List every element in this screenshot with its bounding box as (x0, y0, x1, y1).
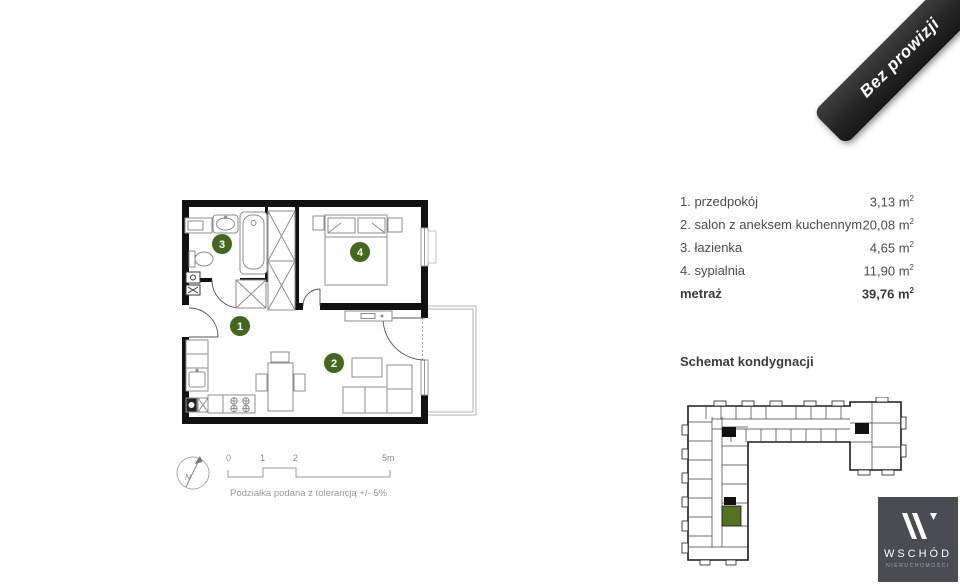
scale-tick-label: 0 (226, 453, 231, 463)
north-label: N (185, 473, 191, 482)
bedroom-window (421, 228, 436, 266)
promo-ribbon: Bez prowizji (795, 0, 960, 165)
balcony-door (383, 318, 425, 360)
brand-subtitle: NIERUCHOMOŚCI (886, 563, 950, 569)
logo-w-icon (897, 511, 939, 541)
living-room-window (421, 318, 428, 395)
room-number: 4 (357, 247, 364, 259)
room-label: 2. salon z aneksem kuchennym (680, 213, 862, 236)
legend-row: 3. łazienka 4,65 m2 (680, 233, 914, 256)
dining-table (256, 352, 305, 411)
north-arrow: N (177, 456, 209, 489)
schematic-title: Schemat kondygnacji (680, 354, 814, 369)
sink (213, 215, 238, 233)
corner-meters (186, 398, 208, 412)
highlighted-unit (722, 506, 741, 526)
floor-plan: 1 2 3 4 (175, 196, 485, 431)
scale-bar-group: N 0 1 2 5m Podziałka podana z tolerancją… (175, 445, 415, 510)
scale-tick-label: 1 (260, 453, 265, 463)
nightstand-right (388, 218, 402, 232)
promo-ribbon-band: Bez prowizji (813, 0, 960, 145)
room-label: 1. przedpokój (680, 190, 758, 213)
page: Bez prowizji 1. przedpokój 3,13 m2 2. sa… (0, 0, 960, 584)
brand-name: WSCHÓD (884, 548, 952, 560)
legend-row: 4. sypialnia 11,90 m2 (680, 256, 914, 279)
legend-total-row: metraż 39,76 m2 (680, 279, 914, 302)
room-number: 1 (237, 321, 243, 333)
washing-machine (185, 218, 212, 233)
toilet (189, 251, 213, 267)
room-number: 3 (219, 239, 225, 251)
utility-meters (186, 272, 200, 295)
total-label: metraż (680, 282, 722, 305)
brand-logo: WSCHÓD NIERUCHOMOŚCI (878, 497, 958, 582)
scale-note: Podziałka podana z tolerancją +/- 5% (230, 488, 388, 499)
legend-row: 2. salon z aneksem kuchennym 20,08 m2 (680, 210, 914, 233)
scale-tick-label: 2 (293, 453, 298, 463)
kitchen-living-furniture (186, 340, 412, 413)
room-legend: 1. przedpokój 3,13 m2 2. salon z aneksem… (680, 187, 914, 302)
balcony (428, 306, 476, 415)
bedroom-door (303, 289, 320, 306)
tv-sideboard (345, 311, 392, 321)
legend-row: 1. przedpokój 3,13 m2 (680, 187, 914, 210)
bathtub (240, 212, 267, 274)
building-outline (688, 402, 901, 560)
building-schematic (680, 397, 908, 569)
scale-bar: 0 1 2 5m (226, 453, 395, 477)
nightstand-left (313, 216, 324, 230)
room-number: 2 (331, 358, 337, 370)
room-label: 4. sypialnia (680, 259, 745, 282)
scale-tick-label: 5m (382, 453, 395, 463)
coffee-table (352, 358, 382, 377)
total-area: 39,76 m2 (862, 279, 914, 305)
room-label: 3. łazienka (680, 236, 742, 259)
entrance-door (189, 308, 218, 337)
promo-ribbon-label: Bez prowizji (856, 14, 944, 102)
